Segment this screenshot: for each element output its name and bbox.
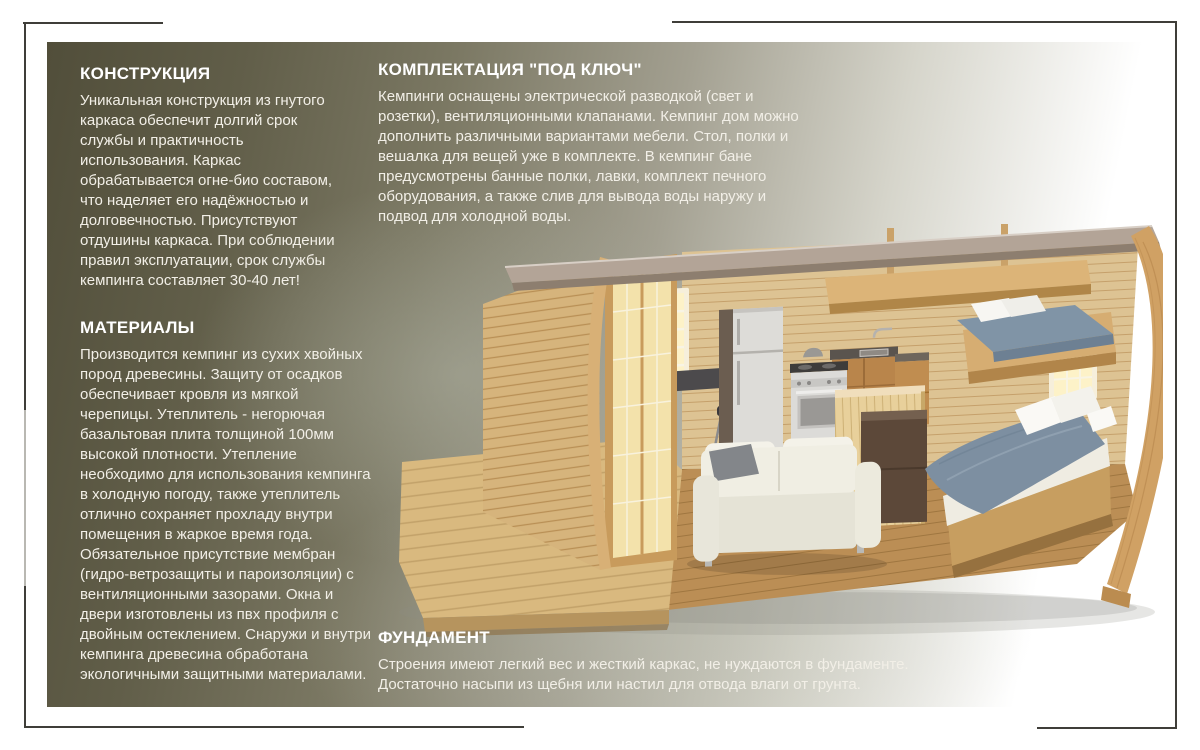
section-body-equipment: Кемпинги оснащены электрической разводко…: [378, 87, 934, 227]
brochure-page: КОНСТРУКЦИЯ Уникальная конструкция из гн…: [0, 0, 1200, 750]
section-body-materials: Производится кемпинг из сухих хвойных по…: [80, 345, 400, 685]
section-title-equipment: КОМПЛЕКТАЦИЯ "ПОД КЛЮЧ": [378, 60, 934, 80]
camping-house-cutaway-illustration: [387, 212, 1163, 644]
section-body-foundation: Строения имеют легкий вес и жесткий карк…: [378, 655, 944, 695]
frame-line-left: [24, 22, 26, 727]
gradient-panel: КОНСТРУКЦИЯ Уникальная конструкция из гн…: [47, 42, 1163, 707]
section-body-construction: Уникальная конструкция из гнутого каркас…: [80, 91, 400, 291]
section-title-materials: МАТЕРИАЛЫ: [80, 318, 400, 338]
section-title-construction: КОНСТРУКЦИЯ: [80, 64, 400, 84]
frame-line-bottom-left: [24, 726, 524, 728]
foundation-section: ФУНДАМЕНТ Строения имеют легкий вес и же…: [378, 628, 944, 722]
frame-line-top-left: [23, 22, 163, 24]
frame-line-bottom-right: [1037, 727, 1177, 729]
frame-line-right: [1175, 21, 1177, 729]
section-title-foundation: ФУНДАМЕНТ: [378, 628, 944, 648]
frame-line-top-right: [672, 21, 1177, 23]
left-column: КОНСТРУКЦИЯ Уникальная конструкция из гн…: [80, 64, 400, 712]
